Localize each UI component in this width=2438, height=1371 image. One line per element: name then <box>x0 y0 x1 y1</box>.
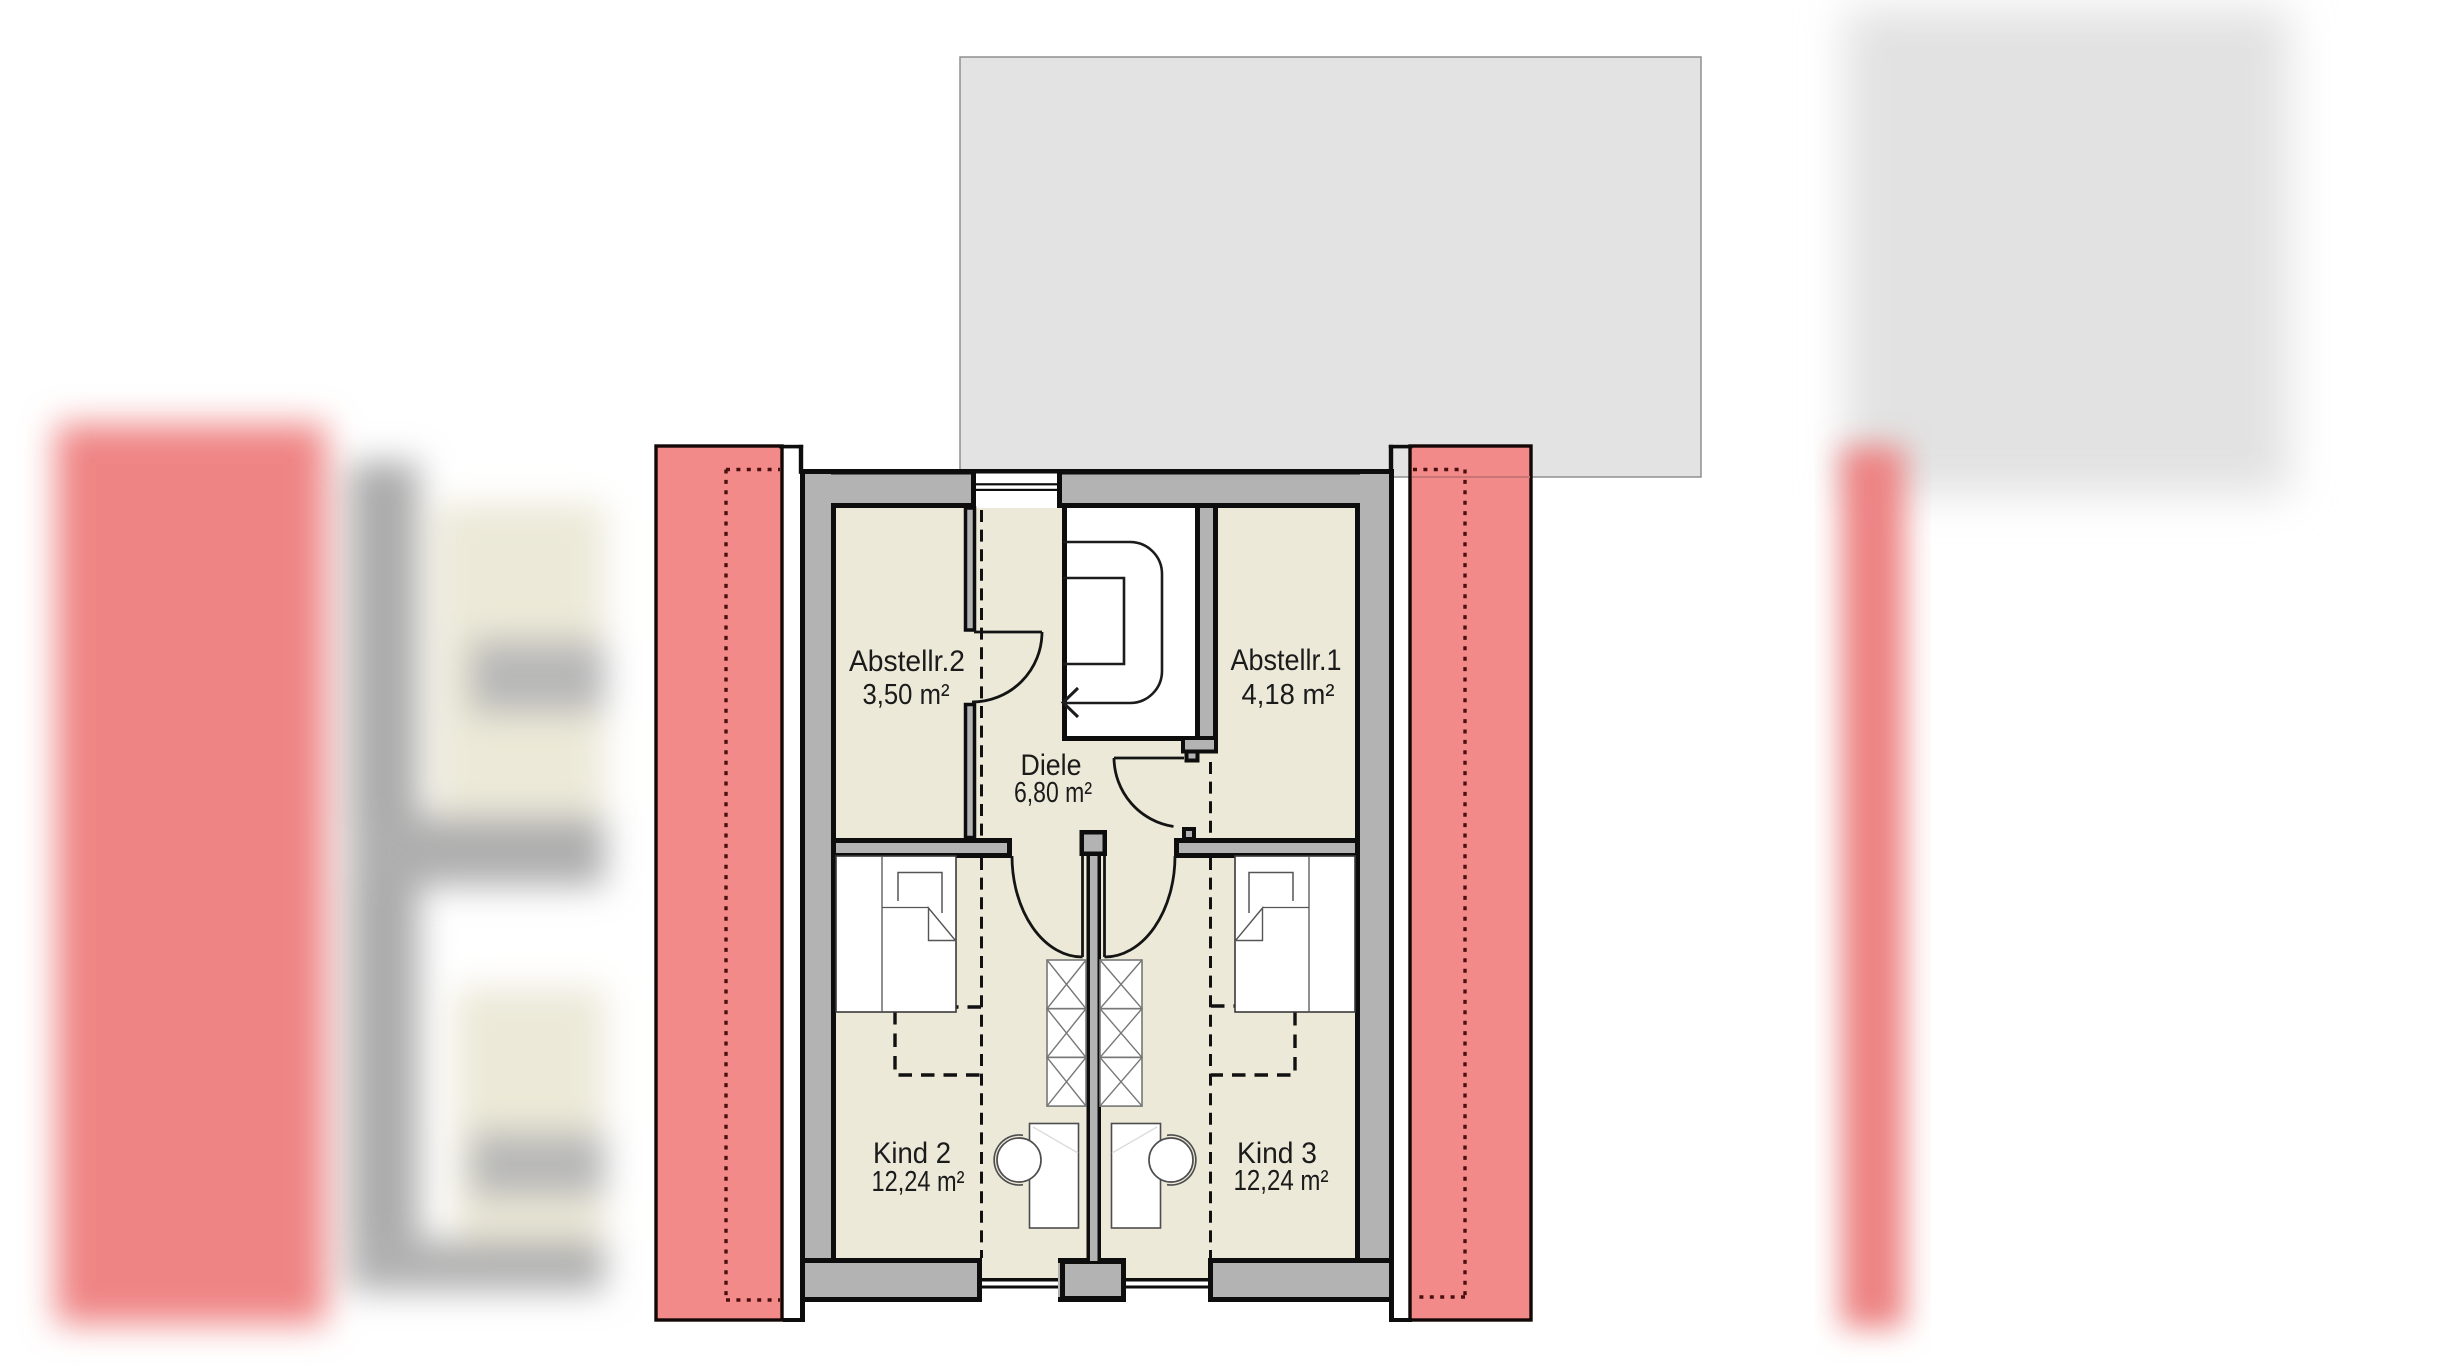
svg-text:6,80 m²: 6,80 m² <box>1014 777 1092 809</box>
svg-text:Abstellr.2: Abstellr.2 <box>849 645 965 678</box>
svg-text:12,24 m²: 12,24 m² <box>1234 1165 1329 1197</box>
svg-text:3,50 m²: 3,50 m² <box>863 679 950 711</box>
svg-text:4,18 m²: 4,18 m² <box>1242 679 1335 711</box>
svg-text:12,24 m²: 12,24 m² <box>872 1166 965 1198</box>
svg-text:Abstellr.1: Abstellr.1 <box>1231 644 1342 677</box>
